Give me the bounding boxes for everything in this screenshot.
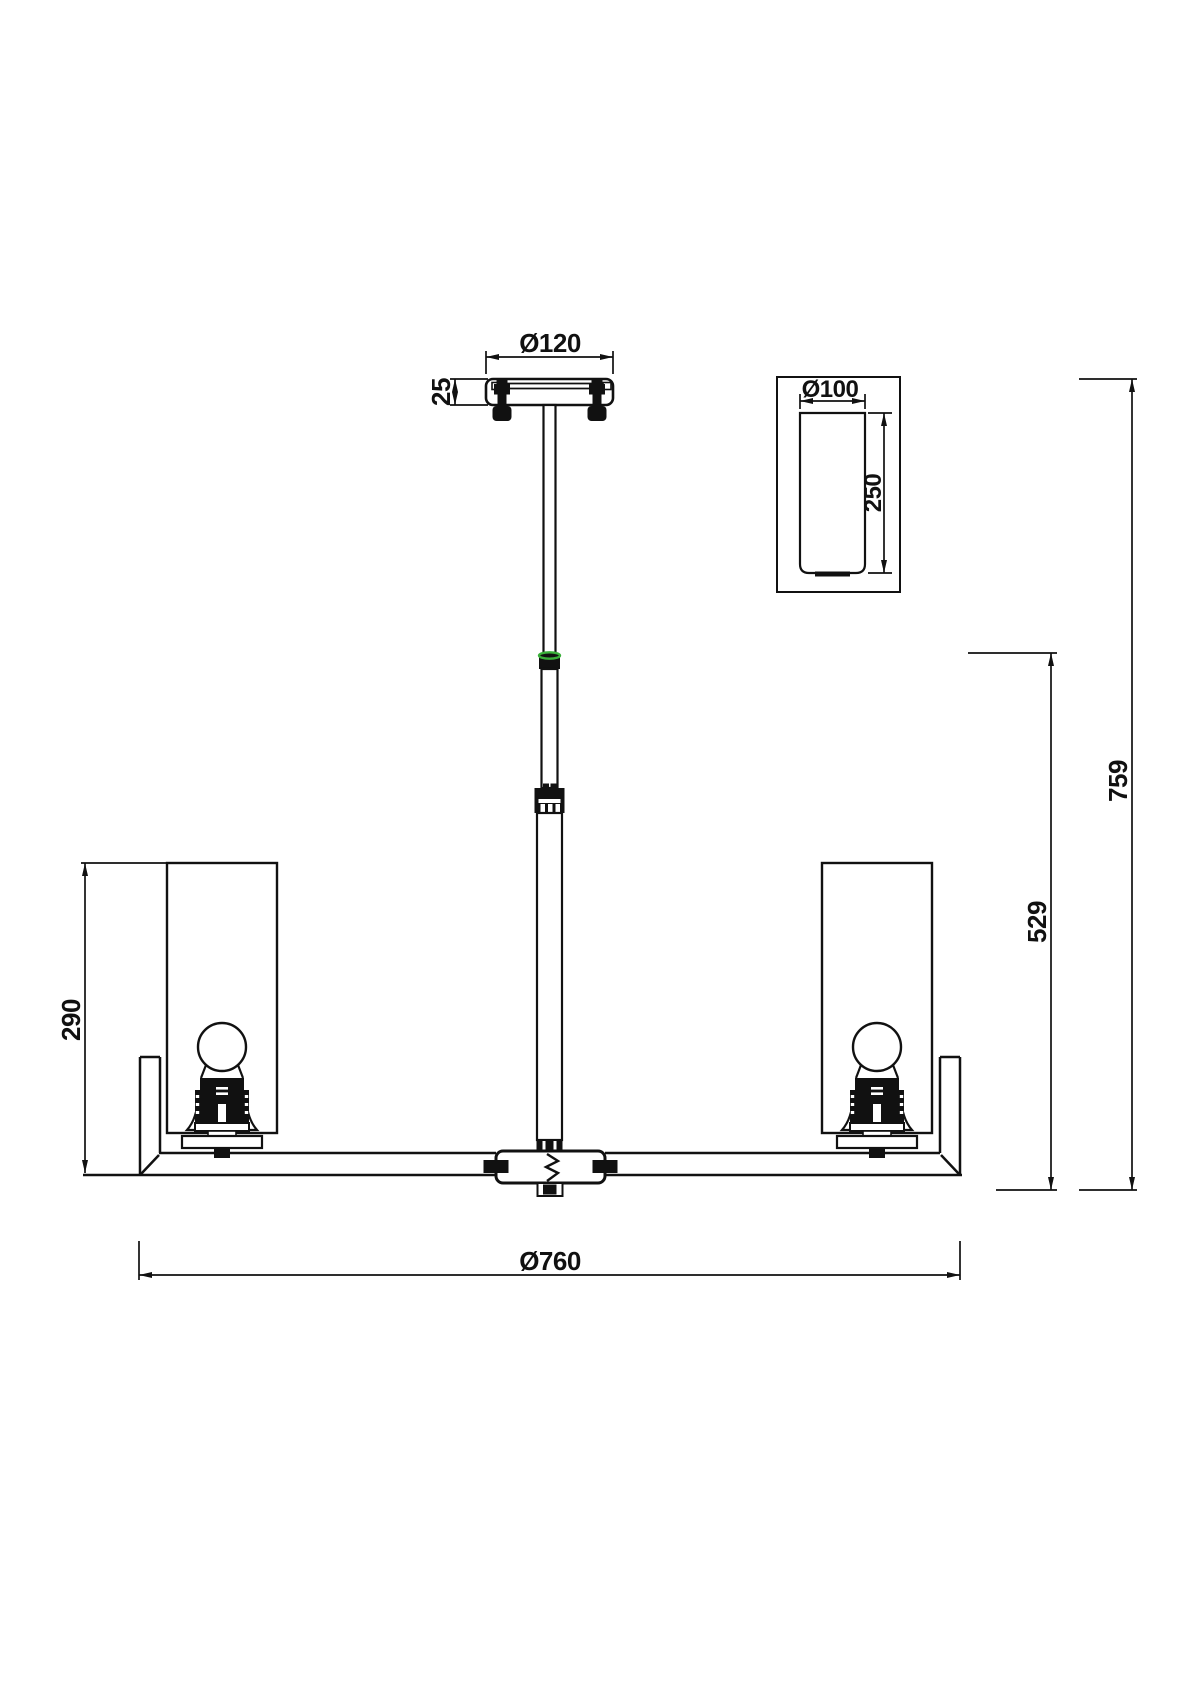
dim-overall-diameter: Ø760 [139, 1241, 960, 1280]
hub-tab-left [484, 1160, 509, 1173]
dim-label-shade-height: 250 [860, 474, 887, 513]
chandelier-dimension-drawing: Ø100 250 Ø120 25 290 [0, 0, 1200, 1699]
rod-upper-section [544, 405, 556, 655]
detail-shade-fitter [815, 572, 850, 577]
dim-below-joint-height: 529 [968, 653, 1057, 1190]
arm-end-upright-left [140, 1057, 160, 1174]
dim-canopy-height: 25 [426, 378, 488, 406]
center-hub [484, 1139, 618, 1196]
dim-label-shade-diameter: Ø100 [802, 376, 859, 403]
dim-canopy-diameter: Ø120 [486, 328, 613, 374]
dim-label-shade-zone-height: 290 [56, 999, 86, 1041]
dim-label-below-joint-height: 529 [1022, 901, 1052, 943]
arm-end-upright-right [940, 1057, 960, 1174]
hub-bottom-finial [538, 1183, 563, 1196]
rod-middle-section [542, 669, 558, 788]
left-lamp-assembly [167, 863, 277, 1158]
rod-lower-section [537, 813, 562, 1140]
dim-label-canopy-diameter: Ø120 [519, 328, 581, 358]
joint-highlight-ring [539, 652, 560, 658]
suspension-rod [535, 405, 565, 1140]
drawing-sheet: Ø100 250 Ø120 25 290 [0, 0, 1200, 1699]
dim-shade-zone-height: 290 [56, 863, 171, 1173]
hub-tab-right [593, 1160, 618, 1173]
right-lamp-assembly [822, 863, 932, 1158]
detail-shade-outline [800, 413, 865, 573]
dim-overall-height: 759 [1079, 379, 1137, 1190]
rod-joint-green [539, 652, 560, 669]
dim-label-overall-height: 759 [1103, 760, 1133, 802]
dim-label-canopy-height: 25 [426, 378, 456, 406]
dim-label-overall-diameter: Ø760 [519, 1246, 581, 1276]
shade-detail-view: Ø100 250 [777, 376, 900, 592]
